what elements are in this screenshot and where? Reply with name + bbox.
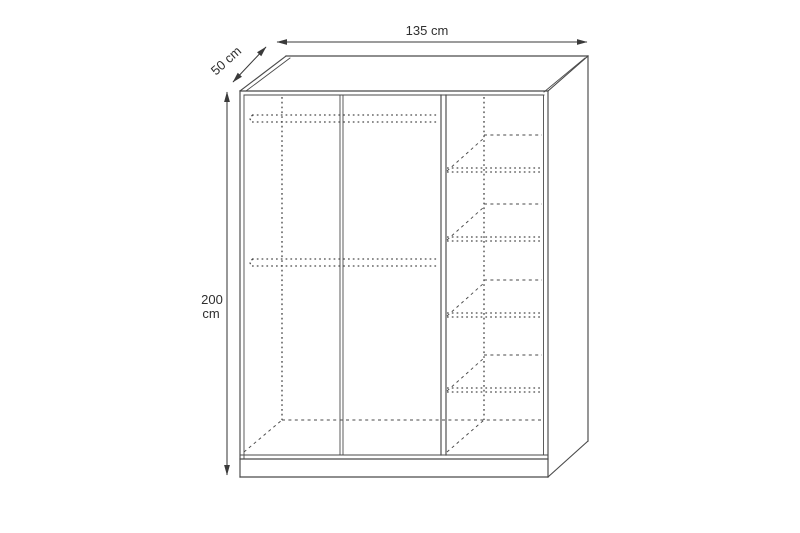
hanging-rail-2-endcap (250, 259, 253, 266)
width-dimension-label: 135 cm (406, 23, 449, 38)
height-dimension: 200 cm (201, 92, 227, 475)
hanging-rail-1-endcap (250, 115, 253, 122)
shelf-2-depth-diagonal (447, 207, 484, 240)
floor-depth-diagonal-right (447, 420, 484, 452)
depth-dimension-label: 50 cm (208, 43, 244, 78)
shelf-3-depth-diagonal (447, 283, 484, 316)
interior-partition (441, 95, 446, 455)
side-bottom-edge (548, 441, 588, 477)
technical-drawing-canvas: 135 cm 50 cm 200 cm (0, 0, 800, 533)
wardrobe-top-face (240, 56, 588, 92)
width-dimension: 135 cm (277, 23, 587, 42)
height-dimension-value: 200 (201, 292, 223, 307)
hanging-rails (250, 115, 438, 266)
depth-dimension: 50 cm (208, 43, 266, 82)
shelf-stack (447, 135, 542, 392)
floor-depth-diagonal-left (244, 420, 282, 452)
top-left-depth-edge (240, 56, 286, 91)
wardrobe-diagram: 135 cm 50 cm 200 cm (0, 0, 800, 533)
interior-back-edges (244, 97, 544, 452)
wardrobe-front-frame (240, 91, 548, 477)
top-right-depth-edge-inner (544, 58, 585, 92)
shelf-4-depth-diagonal (447, 358, 484, 391)
shelf-1-depth-diagonal (447, 138, 484, 171)
height-dimension-unit: cm (202, 306, 219, 321)
door-divider (340, 95, 343, 455)
top-left-depth-edge-inner (246, 58, 290, 91)
top-right-depth-edge (548, 56, 588, 91)
wardrobe-side-face (548, 56, 588, 477)
